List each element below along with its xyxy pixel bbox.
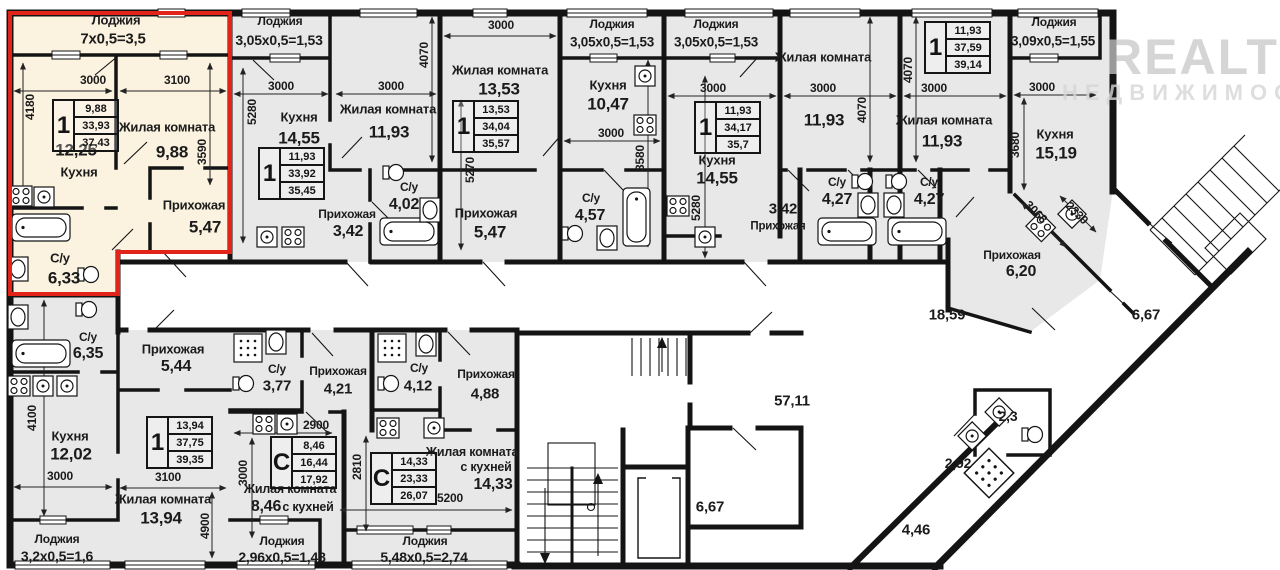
apartment-area-value: 34,04 bbox=[475, 119, 517, 136]
watermark-brand: REALT bbox=[1106, 28, 1279, 86]
apartment-area-value: 39,35 bbox=[169, 452, 211, 467]
apartment-area-value: 33,92 bbox=[281, 166, 323, 183]
apartment-card: С14,3323,3326,07 bbox=[370, 452, 437, 505]
apartment-rooms-count: 1 bbox=[696, 103, 717, 152]
apartment-card: 111,9334,1735,7 bbox=[694, 101, 761, 154]
apartment-card: 111,9333,9235,45 bbox=[258, 147, 325, 200]
apartment-rooms-count: С bbox=[372, 454, 393, 503]
apartment-area-value: 8,46 bbox=[293, 438, 335, 455]
apartment-area-value: 33,93 bbox=[75, 118, 117, 135]
apartment-area-value: 39,14 bbox=[947, 57, 989, 72]
apartment-area-value: 35,57 bbox=[475, 136, 517, 151]
apartment-area-value: 13,94 bbox=[169, 418, 211, 435]
apartment-area-value: 9,88 bbox=[75, 101, 117, 118]
apartment-area-value: 34,17 bbox=[717, 120, 759, 137]
apartment-rooms-count: 1 bbox=[54, 101, 75, 150]
apartment-card: 111,9337,5939,14 bbox=[924, 21, 991, 74]
apartment-area-value: 13,53 bbox=[475, 102, 517, 119]
apartment-rooms-count: 1 bbox=[260, 149, 281, 198]
apartment-area-value: 37,59 bbox=[947, 40, 989, 57]
apartment-area-value: 26,07 bbox=[393, 488, 435, 503]
apartment-area-value: 35,45 bbox=[281, 183, 323, 198]
apartment-area-value: 11,93 bbox=[717, 103, 759, 120]
apartment-area-value: 17,92 bbox=[293, 472, 335, 487]
apartment-area-value: 14,33 bbox=[393, 454, 435, 471]
apartment-area-value: 37,43 bbox=[75, 135, 117, 150]
apartment-area-value: 11,93 bbox=[947, 23, 989, 40]
apartment-rooms-count: 1 bbox=[926, 23, 947, 72]
apartment-rooms-count: С bbox=[272, 438, 293, 487]
watermark-sub: НЕДВИЖИМОСТЬ bbox=[1062, 80, 1280, 106]
apartment-card: С8,4616,4417,92 bbox=[270, 436, 337, 489]
apartment-rooms-count: 1 bbox=[148, 418, 169, 467]
apartment-area-value: 23,33 bbox=[393, 471, 435, 488]
apartment-area-value: 16,44 bbox=[293, 455, 335, 472]
apartment-area-value: 35,7 bbox=[717, 137, 759, 152]
apartment-area-value: 11,93 bbox=[281, 149, 323, 166]
apartment-card: 19,8833,9337,43 bbox=[52, 99, 119, 152]
apartment-rooms-count: 1 bbox=[454, 102, 475, 151]
apartment-card: 113,9437,7539,35 bbox=[146, 416, 213, 469]
apartment-card: 113,5334,0435,57 bbox=[452, 100, 519, 153]
floor-plan: Лоджия7х0,5=3,5300031004180359012,25Кухн… bbox=[0, 0, 1280, 570]
apartment-area-value: 37,75 bbox=[169, 435, 211, 452]
